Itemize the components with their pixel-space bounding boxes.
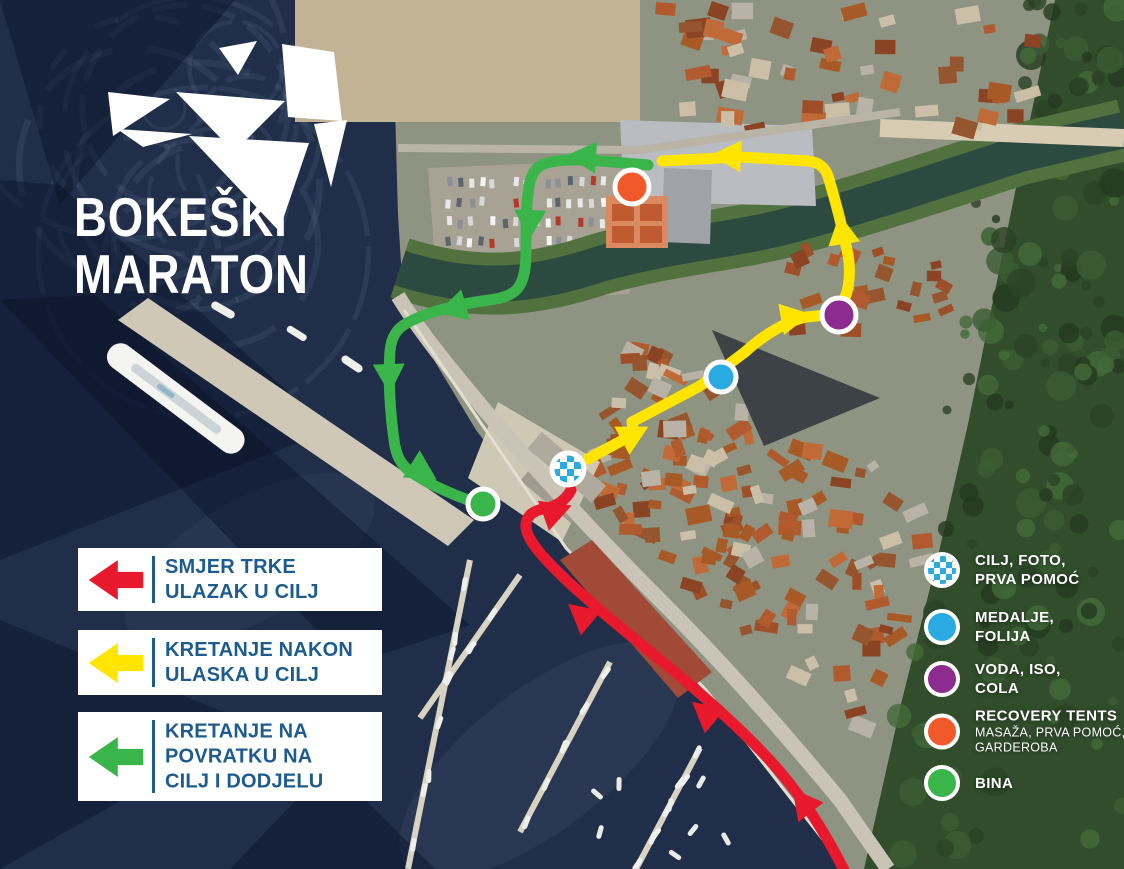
legend-medals-text: MEDALJE, FOLIJA <box>975 608 1054 646</box>
legend-line: CILJ I DODJELU <box>165 769 323 794</box>
orange-circle-icon <box>922 711 962 751</box>
legend-divider <box>152 720 155 793</box>
legend-return-to-finish-text: KRETANJE NA POVRATKU NA CILJ I DODJELU <box>165 719 323 794</box>
legend-divider <box>152 638 155 687</box>
legend-line: PRVA POMOĆ <box>975 570 1080 589</box>
marker-stage <box>468 489 498 519</box>
left-arrow-icon <box>87 640 145 686</box>
legend-subline: MASAŽA, PRVA POMOĆ, <box>975 726 1124 741</box>
purple-circle-icon <box>922 659 962 699</box>
legend-medals: MEDALJE, FOLIJA <box>922 607 1054 647</box>
legend-line: POVRATKU NA <box>165 744 323 769</box>
legend-after-finish-text: KRETANJE NAKON ULASKA U CILJ <box>165 638 353 688</box>
legend-line: SMJER TRKE <box>165 555 319 580</box>
checkered-circle-icon <box>922 550 962 590</box>
legend-finish: CILJ, FOTO, PRVA POMOĆ <box>922 550 1080 590</box>
legend-line: KRETANJE NAKON <box>165 638 353 663</box>
legend-line: FOLIJA <box>975 627 1054 646</box>
legend-line: COLA <box>975 679 1061 698</box>
legend-recovery-text: RECOVERY TENTS MASAŽA, PRVA POMOĆ, GARDE… <box>975 707 1124 756</box>
marker-finish-checkered <box>552 453 584 485</box>
dry-riverbed <box>880 128 1124 138</box>
legend-return-to-finish: KRETANJE NA POVRATKU NA CILJ I DODJELU <box>78 712 382 801</box>
court <box>612 226 634 243</box>
marker-water <box>822 298 856 332</box>
legend-finish-text: CILJ, FOTO, PRVA POMOĆ <box>975 551 1080 589</box>
legend-line: CILJ, FOTO, <box>975 551 1080 570</box>
blue-circle-icon <box>922 607 962 647</box>
legend-line: VODA, ISO, <box>975 660 1061 679</box>
marker-medals <box>706 362 736 392</box>
legend-title: RECOVERY TENTS <box>975 707 1124 726</box>
marathon-route-poster: BOKEŠKI MARATON SMJER TRKE ULAZAK U CILJ… <box>0 0 1124 869</box>
legend-divider <box>152 556 155 603</box>
legend-line: KRETANJE NA <box>165 719 323 744</box>
legend-line: ULAZAK U CILJ <box>165 580 319 605</box>
left-arrow-icon <box>87 557 145 603</box>
legend-water: VODA, ISO, COLA <box>922 659 1061 699</box>
left-arrow-icon <box>87 734 145 780</box>
legend-subline: GARDEROBA <box>975 741 1124 756</box>
marker-recovery <box>615 170 649 204</box>
court <box>612 204 634 221</box>
legend-race-direction-text: SMJER TRKE ULAZAK U CILJ <box>165 555 319 605</box>
legend-after-finish: KRETANJE NAKON ULASKA U CILJ <box>78 630 382 695</box>
legend-line: ULASKA U CILJ <box>165 663 353 688</box>
legend-line: BINA <box>975 774 1013 793</box>
open-ground <box>295 0 640 122</box>
gray-building <box>662 168 712 244</box>
green-circle-icon <box>922 763 962 803</box>
court <box>640 204 662 221</box>
legend-stage: BINA <box>922 763 1013 803</box>
legend-stage-text: BINA <box>975 774 1013 793</box>
legend-recovery: RECOVERY TENTS MASAŽA, PRVA POMOĆ, GARDE… <box>922 707 1124 756</box>
legend-line: MEDALJE, <box>975 608 1054 627</box>
logo-text-line1: BOKEŠKI <box>74 190 288 245</box>
legend-water-text: VODA, ISO, COLA <box>975 660 1061 698</box>
logo-text-line2: MARATON <box>74 247 309 302</box>
legend-race-direction: SMJER TRKE ULAZAK U CILJ <box>78 548 382 611</box>
court <box>640 226 662 243</box>
